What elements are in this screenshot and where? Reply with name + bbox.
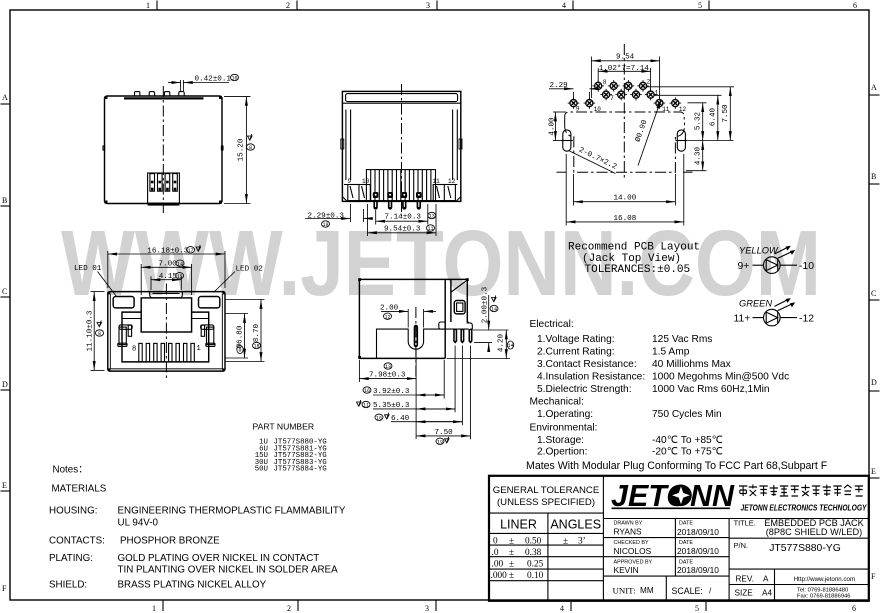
svg-text:11: 11 bbox=[363, 403, 369, 409]
svg-text:9+: 9+ bbox=[738, 261, 750, 272]
svg-text:2018/09/10: 2018/09/10 bbox=[677, 527, 719, 537]
svg-text:D: D bbox=[871, 378, 877, 387]
svg-text:2018/09/10: 2018/09/10 bbox=[677, 565, 719, 575]
svg-text:10: 10 bbox=[362, 178, 370, 185]
svg-text:13: 13 bbox=[385, 364, 391, 370]
svg-text:LINER: LINER bbox=[500, 518, 537, 532]
svg-text:6.40: 6.40 bbox=[709, 107, 717, 126]
svg-text:(UNLESS SPECIFIED): (UNLESS SPECIFIED) bbox=[497, 497, 595, 508]
svg-text:9: 9 bbox=[238, 348, 241, 354]
svg-text:2: 2 bbox=[287, 604, 291, 613]
svg-text:11: 11 bbox=[433, 178, 441, 185]
svg-text:±: ± bbox=[509, 571, 514, 581]
svg-text:9: 9 bbox=[348, 178, 352, 185]
svg-text:GOLD PLATING OVER NICKEL IN CO: GOLD PLATING OVER NICKEL IN CONTACT bbox=[118, 553, 320, 564]
svg-text:11: 11 bbox=[427, 226, 433, 232]
svg-text:ANGLES: ANGLES bbox=[550, 518, 601, 532]
svg-text:7.14±0.3: 7.14±0.3 bbox=[385, 213, 422, 221]
svg-text:14: 14 bbox=[177, 261, 183, 267]
svg-text:Mates With Modular Plug Confor: Mates With Modular Plug Conforming To FC… bbox=[526, 460, 828, 472]
svg-text:1.5 Amp: 1.5 Amp bbox=[652, 347, 690, 358]
svg-text:-20℃ To +75℃: -20℃ To +75℃ bbox=[652, 447, 723, 458]
svg-text:GENERAL TOLERANCE: GENERAL TOLERANCE bbox=[493, 485, 599, 496]
svg-text:.000: .000 bbox=[491, 571, 508, 581]
svg-text:7.50: 7.50 bbox=[722, 104, 730, 123]
svg-text:2.29±0.3: 2.29±0.3 bbox=[308, 212, 345, 220]
svg-text:Tel: 0769-81886480: Tel: 0769-81886480 bbox=[797, 588, 848, 594]
svg-text:1.Operating:: 1.Operating: bbox=[537, 409, 593, 420]
svg-text:8: 8 bbox=[249, 145, 252, 151]
svg-text:2.00±0.3: 2.00±0.3 bbox=[482, 286, 490, 323]
svg-text:4.15: 4.15 bbox=[159, 273, 178, 281]
svg-text:10: 10 bbox=[231, 76, 237, 82]
svg-text:6: 6 bbox=[853, 1, 857, 10]
svg-text:A: A bbox=[871, 83, 877, 92]
svg-text:BRASS PLATING NICKEL ALLOY: BRASS PLATING NICKEL ALLOY bbox=[118, 580, 267, 591]
svg-text:0.38: 0.38 bbox=[525, 548, 542, 558]
svg-text:Electrical:: Electrical: bbox=[530, 319, 574, 330]
svg-text:9.54: 9.54 bbox=[616, 54, 635, 62]
svg-text:4.20: 4.20 bbox=[498, 333, 506, 352]
svg-text:KEVIN: KEVIN bbox=[614, 565, 639, 575]
svg-text:5: 5 bbox=[695, 604, 699, 613]
svg-text:HOUSING:: HOUSING: bbox=[49, 506, 97, 517]
svg-text:E: E bbox=[2, 481, 7, 490]
svg-text:-10: -10 bbox=[799, 261, 814, 272]
svg-text:40 Milliohms Max: 40 Milliohms Max bbox=[652, 359, 731, 370]
svg-text:JT577S884-YG: JT577S884-YG bbox=[274, 466, 327, 474]
svg-text:0.42±0.1: 0.42±0.1 bbox=[195, 76, 232, 84]
svg-text:B: B bbox=[2, 196, 7, 205]
svg-text:9: 9 bbox=[576, 106, 580, 113]
svg-text:1: 1 bbox=[146, 1, 150, 10]
svg-text:C: C bbox=[2, 287, 7, 296]
svg-text:5: 5 bbox=[698, 1, 702, 10]
svg-text:3’: 3’ bbox=[578, 536, 586, 546]
svg-text:PART NUMBER: PART NUMBER bbox=[253, 422, 315, 432]
svg-text:9.54±0.3: 9.54±0.3 bbox=[384, 225, 421, 233]
svg-text:2.Opertion:: 2.Opertion: bbox=[537, 447, 587, 458]
svg-text:16: 16 bbox=[364, 388, 370, 394]
svg-text:JETONN ELECTRONICS TECHNOLOGY: JETONN ELECTRONICS TECHNOLOGY bbox=[741, 503, 868, 513]
svg-text:4: 4 bbox=[560, 604, 564, 613]
svg-text:0.25: 0.25 bbox=[527, 560, 544, 570]
svg-text:A4: A4 bbox=[762, 588, 772, 597]
svg-text:E: E bbox=[871, 467, 876, 476]
svg-text:1: 1 bbox=[152, 604, 156, 613]
svg-text:2.Current Rating:: 2.Current Rating: bbox=[537, 347, 615, 358]
svg-text:18: 18 bbox=[253, 344, 259, 350]
svg-text:10: 10 bbox=[594, 106, 602, 113]
svg-text:±: ± bbox=[509, 548, 514, 558]
svg-text:7: 7 bbox=[610, 95, 614, 102]
svg-text:5.32: 5.32 bbox=[694, 111, 702, 130]
svg-text:Http://www.jetonn.com: Http://www.jetonn.com bbox=[794, 576, 856, 583]
svg-text:ENGINEERING THERMOPLASTIC FLAM: ENGINEERING THERMOPLASTIC FLAMMABILITY bbox=[118, 506, 346, 517]
svg-text:Fax: 0769-81886946: Fax: 0769-81886946 bbox=[797, 594, 851, 600]
svg-text:14: 14 bbox=[491, 307, 497, 313]
svg-text:2.29: 2.29 bbox=[550, 82, 569, 90]
svg-text:TITLE.: TITLE. bbox=[734, 519, 756, 528]
svg-text:4.Insulation Resistance:: 4.Insulation Resistance: bbox=[537, 372, 645, 383]
svg-text:750 Cycles Min: 750 Cycles Min bbox=[652, 409, 722, 420]
svg-text:4.00: 4.00 bbox=[548, 117, 556, 136]
svg-text:19: 19 bbox=[437, 440, 443, 446]
svg-text:P/N.: P/N. bbox=[734, 541, 748, 550]
svg-text:8: 8 bbox=[132, 346, 136, 354]
svg-text:SIZE: SIZE bbox=[735, 588, 754, 597]
svg-text:12: 12 bbox=[679, 106, 687, 113]
svg-text:B: B bbox=[871, 172, 876, 181]
svg-text:±: ± bbox=[509, 560, 514, 570]
svg-text:2.00: 2.00 bbox=[380, 304, 399, 312]
svg-text:A: A bbox=[2, 93, 8, 102]
svg-text:CONTACTS:: CONTACTS: bbox=[49, 536, 105, 547]
svg-text:JT577S880-YG: JT577S880-YG bbox=[769, 543, 841, 554]
svg-text:0.10: 0.10 bbox=[527, 571, 544, 581]
svg-text:±: ± bbox=[563, 536, 568, 546]
svg-text:1000 Megohms Min@500 Vdc: 1000 Megohms Min@500 Vdc bbox=[652, 372, 789, 383]
svg-text:DATE: DATE bbox=[679, 521, 693, 527]
svg-text:UNIT:: UNIT: bbox=[613, 586, 636, 596]
svg-text:15: 15 bbox=[177, 274, 183, 280]
svg-text:2: 2 bbox=[647, 79, 651, 86]
svg-text:8: 8 bbox=[98, 331, 101, 337]
svg-text:SHIELD:: SHIELD: bbox=[49, 580, 87, 591]
svg-text:Environmental:: Environmental: bbox=[530, 423, 598, 434]
svg-text:RYANS: RYANS bbox=[614, 526, 642, 536]
svg-text:2: 2 bbox=[286, 1, 290, 10]
svg-text:LED 02: LED 02 bbox=[236, 266, 264, 274]
svg-text:15.20: 15.20 bbox=[237, 138, 245, 161]
svg-text:-12: -12 bbox=[799, 314, 814, 325]
svg-text:8: 8 bbox=[603, 79, 607, 86]
svg-text:16: 16 bbox=[376, 416, 382, 422]
svg-text:4.30: 4.30 bbox=[694, 146, 702, 165]
svg-text:SCALE:: SCALE: bbox=[672, 586, 703, 596]
svg-text:11+: 11+ bbox=[734, 314, 751, 325]
svg-text:12: 12 bbox=[384, 314, 390, 320]
svg-text:REV.: REV. bbox=[736, 574, 754, 583]
svg-text:MATERIALS: MATERIALS bbox=[52, 484, 107, 495]
svg-text:.0: .0 bbox=[492, 548, 499, 558]
svg-text:D: D bbox=[2, 380, 8, 389]
svg-text:A: A bbox=[763, 574, 769, 583]
svg-text:NICOLOS: NICOLOS bbox=[614, 546, 652, 556]
svg-text:±: ± bbox=[509, 536, 514, 546]
svg-text:11: 11 bbox=[662, 106, 670, 113]
svg-text:MM: MM bbox=[640, 586, 654, 595]
svg-text:12: 12 bbox=[448, 178, 456, 185]
svg-text:-40℃ To +85℃: -40℃ To +85℃ bbox=[652, 435, 723, 446]
svg-text:F: F bbox=[871, 572, 876, 581]
svg-text:PHOSPHOR BRONZE: PHOSPHOR BRONZE bbox=[120, 536, 220, 547]
svg-text:UL 94V-0: UL 94V-0 bbox=[118, 518, 159, 529]
svg-text:Ø6.80: Ø6.80 bbox=[236, 325, 245, 348]
svg-text:16.08: 16.08 bbox=[614, 215, 637, 223]
svg-text:1.02*7=7.14: 1.02*7=7.14 bbox=[599, 65, 650, 73]
svg-text:11.10±0.3: 11.10±0.3 bbox=[86, 310, 94, 351]
svg-text:TOLERANCES:±0.05: TOLERANCES:±0.05 bbox=[585, 264, 691, 276]
svg-text:F: F bbox=[2, 584, 7, 593]
svg-text:PLATING:: PLATING: bbox=[49, 553, 93, 564]
svg-text:.00: .00 bbox=[492, 560, 504, 570]
svg-text:50U: 50U bbox=[255, 466, 268, 474]
svg-text:3: 3 bbox=[425, 604, 429, 613]
svg-text:8.70: 8.70 bbox=[253, 323, 261, 342]
svg-text:19: 19 bbox=[322, 222, 328, 228]
svg-text:(8P8C SHIELD W/LED): (8P8C SHIELD W/LED) bbox=[766, 527, 863, 537]
svg-text:TIN PLANTING OVER NICKEL IN SO: TIN PLANTING OVER NICKEL IN SOLDER AREA bbox=[118, 565, 339, 576]
svg-text:13: 13 bbox=[429, 214, 435, 220]
svg-text:125 Vac Rms: 125 Vac Rms bbox=[652, 334, 712, 345]
svg-text:1: 1 bbox=[197, 345, 201, 353]
svg-text:Mechanical:: Mechanical: bbox=[530, 397, 584, 408]
svg-text:7.00: 7.00 bbox=[159, 261, 178, 269]
svg-text:5.Dielectric Strength:: 5.Dielectric Strength: bbox=[537, 384, 632, 395]
svg-text:3.Contact Resistance:: 3.Contact Resistance: bbox=[537, 359, 637, 370]
svg-text:Notes：: Notes： bbox=[53, 465, 88, 476]
svg-text:2018/09/10: 2018/09/10 bbox=[677, 546, 719, 556]
svg-text:C: C bbox=[871, 289, 876, 298]
svg-text:Recommend PCB Layout: Recommend PCB Layout bbox=[568, 242, 700, 254]
svg-text:17: 17 bbox=[187, 248, 193, 254]
svg-text:6: 6 bbox=[852, 604, 856, 613]
svg-text:1.Storage:: 1.Storage: bbox=[537, 435, 584, 446]
svg-text:3: 3 bbox=[426, 1, 430, 10]
svg-text:14: 14 bbox=[507, 343, 513, 349]
svg-text:4: 4 bbox=[562, 1, 566, 10]
svg-text:0.50: 0.50 bbox=[525, 536, 542, 546]
svg-text:16.18±0.3: 16.18±0.3 bbox=[147, 247, 188, 255]
svg-text:0: 0 bbox=[493, 536, 498, 546]
svg-text:1000 Vac Rms 60Hz,1Min: 1000 Vac Rms 60Hz,1Min bbox=[652, 384, 770, 395]
svg-text:GREEN: GREEN bbox=[739, 299, 772, 309]
svg-text:YELLOW: YELLOW bbox=[739, 246, 779, 256]
svg-text:14.00: 14.00 bbox=[614, 195, 637, 203]
svg-text:1.Voltage Rating:: 1.Voltage Rating: bbox=[537, 334, 615, 345]
